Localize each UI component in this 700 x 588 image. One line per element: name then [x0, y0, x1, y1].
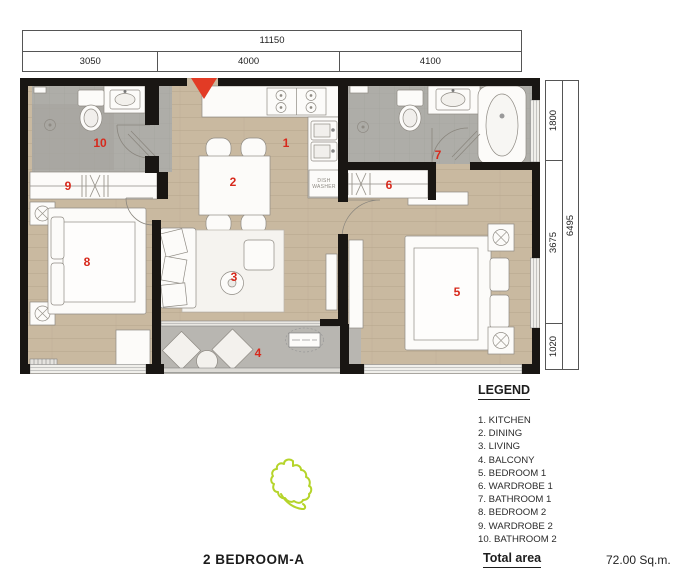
pillow	[490, 258, 509, 291]
legend-item: 2. DINING	[478, 427, 557, 440]
legend-title: LEGEND	[478, 383, 530, 400]
toilet-1-icon	[397, 90, 423, 106]
toilet-2-icon	[78, 90, 104, 106]
shelf-1	[350, 86, 368, 93]
green-outline-icon	[266, 456, 318, 514]
dimension-table-top: 11150 3050 4000 4100	[22, 30, 522, 72]
dishwasher-icon	[309, 170, 339, 197]
wardrobe-2	[30, 172, 157, 199]
total-area-label: Total area	[483, 551, 541, 568]
legend-item: 4. BALCONY	[478, 454, 557, 467]
pillow	[490, 295, 509, 328]
legend-item: 8. BEDROOM 2	[478, 506, 557, 519]
legend-list: 1. KITCHEN 2. DINING 3. LIVING 4. BALCON…	[478, 414, 557, 546]
plan-title: 2 BEDROOM-A	[203, 552, 305, 567]
legend-item: 10. BATHROOM 2	[478, 533, 557, 546]
floor-plan-page: 11150 3050 4000 4100 1800 3675 1020 6495	[0, 0, 700, 588]
dimension-segment-1020: 1020	[546, 324, 562, 369]
cushion	[161, 256, 187, 283]
tv-console	[326, 254, 337, 310]
dimension-segment-2: 4000	[158, 52, 339, 72]
dimension-segment-3675: 3675	[546, 161, 562, 324]
legend-item: 7. BATHROOM 1	[478, 493, 557, 506]
legend-item: 6. WARDROBE 1	[478, 480, 557, 493]
legend-item: 5. BEDROOM 1	[478, 467, 557, 480]
legend-item: 3. LIVING	[478, 440, 557, 453]
cushion	[161, 283, 187, 307]
total-area-value: 72.00 Sq.m.	[606, 553, 671, 567]
dimension-total-height: 6495	[563, 81, 579, 369]
pillow	[51, 217, 64, 259]
dimension-table-right: 1800 3675 1020 6495	[545, 80, 579, 370]
floor-plan: 1 2 3 4 5 6 7 8 9 10 DISH WASHER	[20, 78, 540, 374]
pillow	[51, 263, 64, 305]
dimension-segment-1: 3050	[23, 52, 158, 72]
dimension-right-segments: 1800 3675 1020	[546, 81, 563, 369]
dimension-segment-1800: 1800	[546, 81, 562, 161]
dining-table	[199, 156, 270, 215]
wardrobe-1	[342, 170, 428, 198]
wardrobe-cabinet	[349, 240, 363, 328]
dimension-total-width: 11150	[23, 31, 521, 52]
legend-item: 9. WARDROBE 2	[478, 520, 557, 533]
armchair	[244, 240, 274, 270]
floor-plan-canvas	[20, 78, 540, 374]
balcony-railing	[161, 368, 348, 373]
dimension-segment-3: 4100	[340, 52, 521, 72]
legend-item: 1. KITCHEN	[478, 414, 557, 427]
dimension-segments-row: 3050 4000 4100	[23, 52, 521, 72]
shelf-2	[34, 87, 46, 93]
